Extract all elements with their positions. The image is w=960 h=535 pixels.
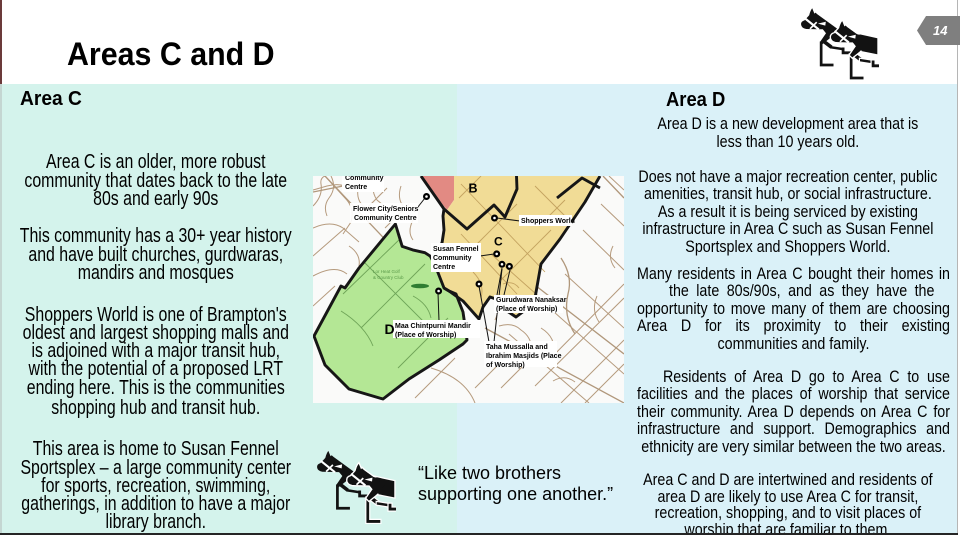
svg-text:of Worship): of Worship) <box>486 362 525 369</box>
svg-text:Community: Community <box>433 255 472 262</box>
svg-text:(Place of Worship): (Place of Worship) <box>496 306 557 313</box>
svg-text:Flower City/Seniors: Flower City/Seniors <box>353 206 418 213</box>
svg-text:Community: Community <box>345 176 384 182</box>
svg-text:Susan Fennel: Susan Fennel <box>433 246 479 253</box>
svg-text:Lor Heat Golf: Lor Heat Golf <box>373 269 401 274</box>
svg-text:Centre: Centre <box>345 184 367 191</box>
svg-text:Taha Mussalla and: Taha Mussalla and <box>486 344 548 351</box>
svg-text:(Place of Worship): (Place of Worship) <box>395 332 456 339</box>
svg-text:Ibrahim Masjids (Place: Ibrahim Masjids (Place <box>486 353 562 360</box>
svg-text:Centre: Centre <box>433 264 455 271</box>
svg-text:Maa Chintpurni Mandir: Maa Chintpurni Mandir <box>395 323 471 330</box>
svg-text:D: D <box>385 321 395 337</box>
svg-text:Gurudwara Nanaksar: Gurudwara Nanaksar <box>496 297 567 304</box>
svg-text:C: C <box>494 235 503 249</box>
svg-text:& Country Club: & Country Club <box>373 275 404 280</box>
svg-text:Shoppers World: Shoppers World <box>521 218 575 225</box>
svg-text:B: B <box>469 182 478 196</box>
svg-text:Community Centre: Community Centre <box>354 215 417 222</box>
